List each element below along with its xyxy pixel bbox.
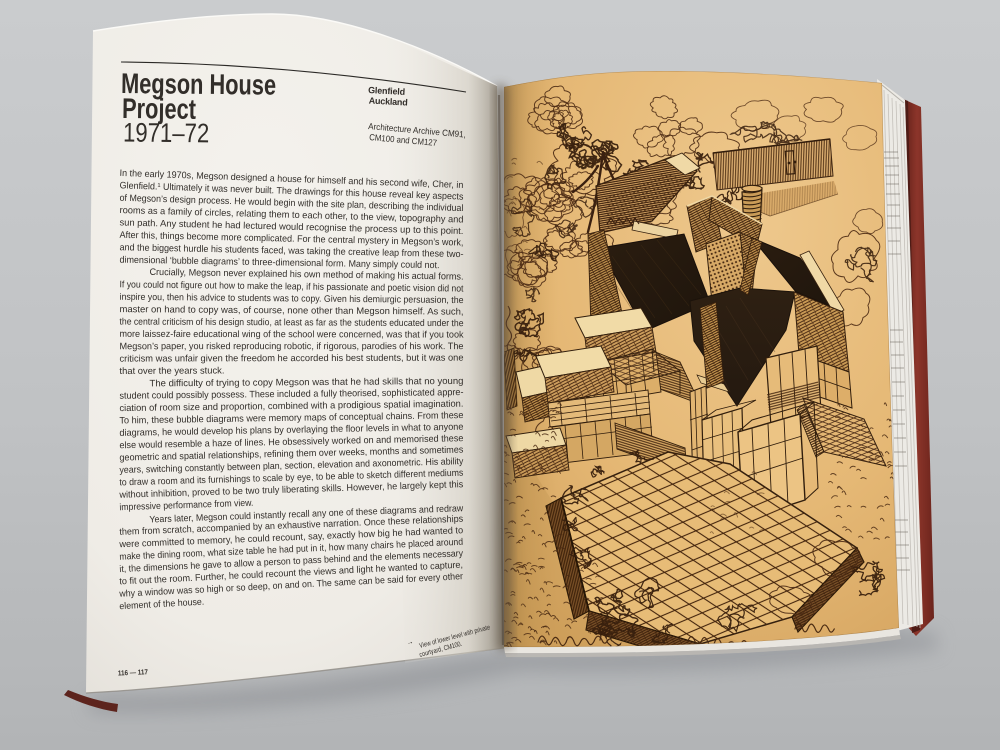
svg-text:1971–72: 1971–72 [123,119,209,149]
svg-text:that over the years stuck.: that over the years stuck. [119,364,224,376]
svg-text:Megson’s paper, you risked rep: Megson’s paper, you risked reproducing r… [119,340,463,351]
svg-text:the central criticism of his d: the central criticism of his design stud… [119,316,463,329]
svg-text:criticism was unfair given the: criticism was unfair given the freedom h… [119,352,463,364]
svg-text:more laissez-faire educational: more laissez-faire educational wing of t… [119,328,463,340]
svg-text:116 — 117: 116 — 117 [118,667,148,677]
svg-text:Auckland: Auckland [369,95,408,107]
